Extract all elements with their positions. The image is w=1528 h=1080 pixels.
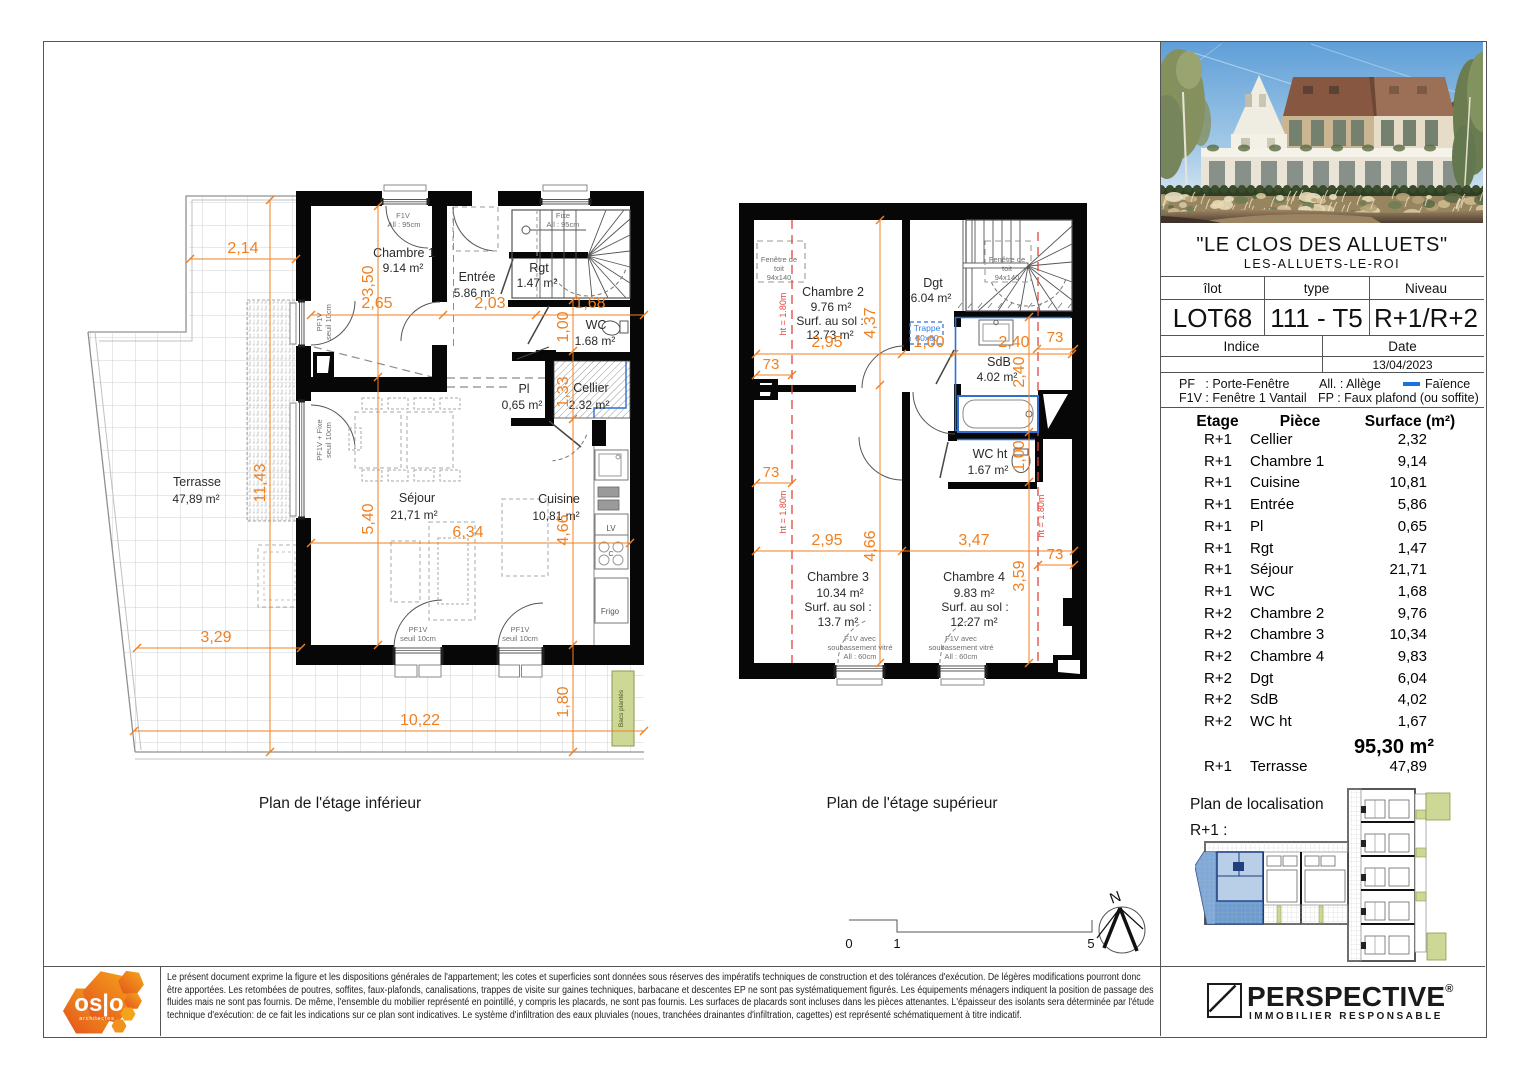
svg-text:architectes: architectes: [79, 1016, 114, 1022]
svg-text:os|o: os|o: [74, 990, 123, 1017]
